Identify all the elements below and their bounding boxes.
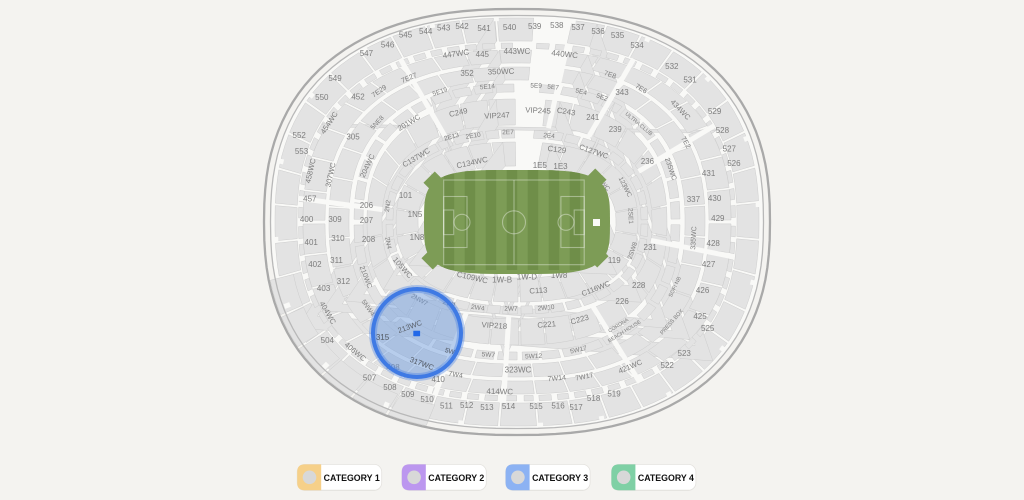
svg-text:343: 343 <box>615 88 629 97</box>
svg-text:540: 540 <box>503 23 517 32</box>
svg-text:431: 431 <box>702 169 716 178</box>
svg-text:101: 101 <box>399 191 413 200</box>
svg-text:513: 513 <box>480 403 494 412</box>
svg-text:546: 546 <box>381 41 395 50</box>
svg-text:402: 402 <box>308 260 322 269</box>
svg-text:5W12: 5W12 <box>525 353 543 361</box>
svg-text:552: 552 <box>293 131 307 140</box>
svg-text:532: 532 <box>665 62 679 71</box>
svg-text:323WC: 323WC <box>505 366 532 375</box>
svg-text:528: 528 <box>716 126 730 135</box>
svg-text:516: 516 <box>551 402 565 411</box>
svg-text:426: 426 <box>696 286 710 295</box>
svg-text:429: 429 <box>711 214 725 223</box>
svg-text:CATEGORY 2: CATEGORY 2 <box>428 473 484 483</box>
svg-text:544: 544 <box>419 27 433 36</box>
svg-text:539: 539 <box>528 22 542 31</box>
svg-text:430: 430 <box>708 194 722 203</box>
svg-text:457: 457 <box>303 195 317 204</box>
svg-text:400: 400 <box>300 215 314 224</box>
svg-text:518: 518 <box>587 394 601 403</box>
svg-text:522: 522 <box>661 361 675 370</box>
svg-text:236: 236 <box>641 157 654 166</box>
svg-text:549: 549 <box>328 74 342 83</box>
svg-text:504: 504 <box>321 336 335 345</box>
svg-text:311: 311 <box>330 256 343 265</box>
svg-text:305: 305 <box>346 133 360 142</box>
svg-text:517: 517 <box>569 403 583 412</box>
svg-text:452: 452 <box>351 93 365 102</box>
svg-text:VIP245: VIP245 <box>525 105 552 115</box>
svg-text:515: 515 <box>529 402 543 411</box>
svg-text:535: 535 <box>611 31 625 40</box>
svg-text:337: 337 <box>687 195 701 204</box>
svg-text:541: 541 <box>477 24 491 33</box>
svg-text:425: 425 <box>693 312 707 321</box>
svg-text:2E7: 2E7 <box>502 129 514 136</box>
svg-text:119: 119 <box>608 256 621 265</box>
svg-text:537: 537 <box>571 23 585 32</box>
svg-text:228: 228 <box>632 281 646 290</box>
svg-text:312: 312 <box>337 277 351 286</box>
svg-text:550: 550 <box>315 93 329 102</box>
svg-text:542: 542 <box>455 22 469 31</box>
svg-text:553: 553 <box>295 147 309 156</box>
svg-text:510: 510 <box>420 395 434 404</box>
svg-text:2E4: 2E4 <box>543 132 556 140</box>
svg-text:335WC: 335WC <box>690 226 698 250</box>
svg-text:401: 401 <box>305 238 319 247</box>
svg-text:526: 526 <box>727 159 741 168</box>
svg-text:226: 226 <box>615 297 629 306</box>
svg-text:403: 403 <box>317 284 331 293</box>
svg-text:525: 525 <box>701 324 715 333</box>
svg-text:428: 428 <box>707 239 721 248</box>
svg-text:534: 534 <box>630 41 644 50</box>
svg-text:527: 527 <box>723 145 737 154</box>
svg-text:445: 445 <box>476 50 490 59</box>
svg-text:508: 508 <box>383 383 397 392</box>
svg-text:5E9: 5E9 <box>530 82 542 89</box>
svg-text:547: 547 <box>360 49 374 58</box>
svg-text:239: 239 <box>609 125 622 134</box>
svg-text:519: 519 <box>607 390 621 399</box>
svg-text:514: 514 <box>502 402 516 411</box>
svg-text:1N5: 1N5 <box>408 210 423 219</box>
svg-text:538: 538 <box>550 21 564 30</box>
svg-text:511: 511 <box>440 402 453 411</box>
svg-text:VIP247: VIP247 <box>484 110 510 120</box>
svg-text:2SE1: 2SE1 <box>626 208 634 225</box>
svg-text:512: 512 <box>460 401 474 410</box>
svg-text:CATEGORY 1: CATEGORY 1 <box>324 473 380 483</box>
svg-text:443WC: 443WC <box>504 47 531 56</box>
svg-text:208: 208 <box>362 235 376 244</box>
svg-text:241: 241 <box>586 113 599 122</box>
svg-text:231: 231 <box>644 243 658 252</box>
svg-text:C221: C221 <box>537 319 556 330</box>
svg-text:1E3: 1E3 <box>553 162 568 171</box>
svg-text:536: 536 <box>591 27 605 36</box>
svg-text:310: 310 <box>331 234 345 243</box>
svg-text:2W7: 2W7 <box>504 306 518 313</box>
svg-text:VIP218: VIP218 <box>481 320 507 331</box>
svg-text:543: 543 <box>437 24 451 33</box>
svg-text:206: 206 <box>360 201 374 210</box>
svg-text:309: 309 <box>328 215 342 224</box>
svg-text:5W7: 5W7 <box>481 351 495 359</box>
svg-text:C113: C113 <box>529 286 548 296</box>
svg-text:5E14: 5E14 <box>480 83 496 91</box>
svg-text:531: 531 <box>683 76 697 85</box>
svg-text:350WC: 350WC <box>488 67 515 77</box>
svg-text:1E5: 1E5 <box>533 161 548 170</box>
svg-text:414WC: 414WC <box>486 387 513 397</box>
svg-text:523: 523 <box>678 349 692 358</box>
svg-text:CATEGORY 3: CATEGORY 3 <box>532 473 588 483</box>
svg-text:545: 545 <box>399 31 413 40</box>
svg-text:427: 427 <box>702 260 716 269</box>
svg-text:1N8: 1N8 <box>410 233 425 242</box>
svg-text:509: 509 <box>401 390 415 399</box>
svg-text:207: 207 <box>360 216 374 225</box>
svg-text:315: 315 <box>376 333 390 342</box>
svg-text:529: 529 <box>708 107 722 116</box>
svg-text:507: 507 <box>363 374 377 383</box>
svg-text:5E7: 5E7 <box>547 84 560 92</box>
svg-text:1W-B: 1W-B <box>492 276 512 285</box>
svg-text:CATEGORY 4: CATEGORY 4 <box>638 473 694 483</box>
svg-text:352: 352 <box>460 69 474 78</box>
